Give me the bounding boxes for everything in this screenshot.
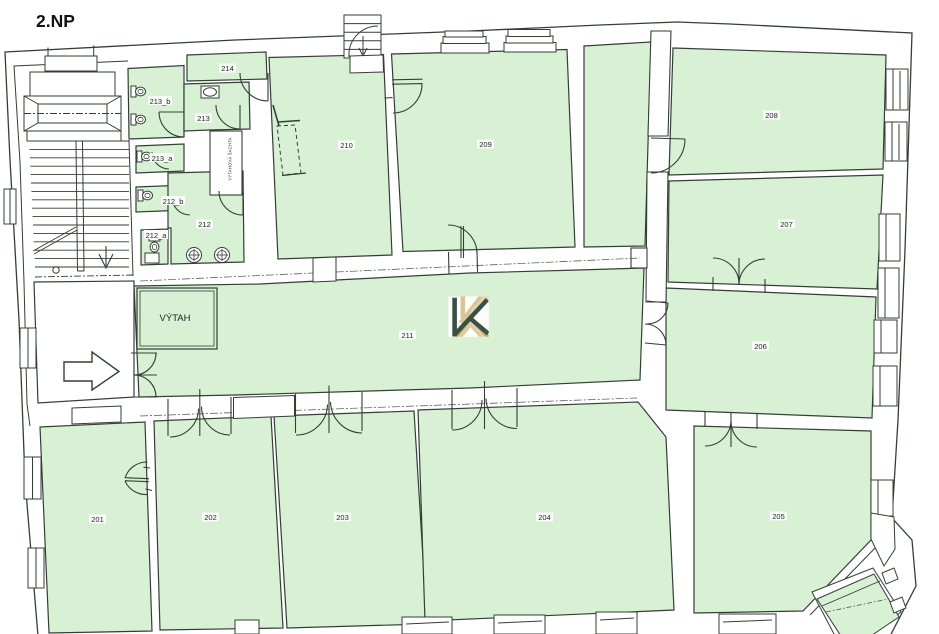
svg-text:208: 208 (765, 111, 778, 120)
svg-text:202: 202 (204, 513, 217, 522)
svg-text:212: 212 (198, 220, 211, 229)
svg-text:211: 211 (402, 331, 414, 340)
svg-text:204: 204 (538, 513, 551, 522)
svg-text:213: 213 (197, 114, 210, 123)
svg-text:212_b: 212_b (163, 197, 184, 206)
svg-text:207: 207 (780, 220, 793, 229)
svg-text:212_a: 212_a (146, 231, 168, 240)
svg-text:213_a: 213_a (152, 154, 174, 163)
svg-text:201: 201 (91, 515, 104, 524)
svg-text:214: 214 (221, 64, 234, 73)
svg-text:205: 205 (772, 512, 785, 521)
svg-text:213_b: 213_b (150, 97, 171, 106)
svg-text:203: 203 (336, 513, 349, 522)
svg-text:210: 210 (340, 141, 353, 150)
svg-text:2.NP: 2.NP (36, 11, 75, 31)
svg-text:206: 206 (754, 342, 767, 351)
svg-text:VÝTAH: VÝTAH (160, 313, 191, 324)
svg-text:209: 209 (479, 140, 492, 149)
svg-text:VÝTAHOVÁ ŠACHTA: VÝTAHOVÁ ŠACHTA (228, 137, 233, 180)
